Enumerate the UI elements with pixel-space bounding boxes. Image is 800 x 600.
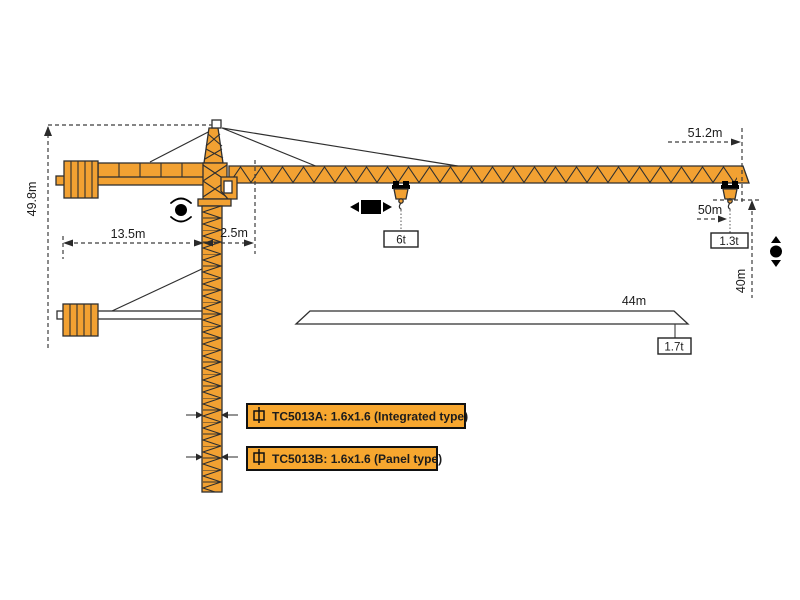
svg-text:6t: 6t — [396, 235, 406, 247]
variant-b-label: TC5013B: 1.6x1.6 (Panel type) — [272, 452, 442, 466]
counter-jib-platform — [98, 163, 204, 177]
radius-dimension-label: 51.2m — [688, 126, 723, 140]
hook-radius-label: 50m — [698, 203, 722, 217]
counter-jib-dimension: 13.5m — [63, 227, 204, 259]
diagram-canvas: 44m 1.7t — [0, 0, 800, 600]
variant-a-label: TC5013A: 1.6x1.6 (Integrated type) — [272, 410, 468, 424]
load-label-jib-tip: 1.3t — [711, 233, 748, 248]
height-dimension-label: 49.8m — [25, 182, 39, 217]
tower-crane-dimension-diagram: 44m 1.7t — [0, 0, 800, 600]
slewing-icon — [171, 199, 191, 222]
short-jib-length-label: 44m — [622, 294, 646, 308]
counterweight — [64, 161, 98, 198]
offset-dimension-label: 2.5m — [220, 226, 248, 240]
svg-text:1.7t: 1.7t — [664, 342, 684, 354]
hook-height-label: 40m — [734, 269, 748, 293]
load-label-short-jib-tip: 1.7t — [658, 338, 691, 354]
jib-lattice — [230, 167, 737, 183]
hook-radius-dimension: 50m — [697, 203, 727, 223]
cab-window — [224, 181, 232, 193]
main-jib — [229, 166, 749, 183]
counter-jib — [56, 128, 216, 198]
tower-apex — [204, 120, 223, 163]
trolley-mid-span — [392, 181, 410, 210]
apex-cap — [212, 120, 221, 128]
jib-tie-rods — [222, 128, 470, 169]
mast-lattice — [202, 206, 222, 492]
variant-box-b: TC5013B: 1.6x1.6 (Panel type) — [247, 447, 442, 470]
hook-icon — [399, 199, 403, 203]
counter-jib-dimension-label: 13.5m — [111, 227, 146, 241]
variant-box-a: TC5013A: 1.6x1.6 (Integrated type) — [247, 404, 468, 428]
short-jib-outline — [296, 311, 688, 324]
hoist-up-down-icon — [770, 236, 782, 267]
slewing-platform — [198, 199, 231, 206]
trolley-travel-icon — [350, 200, 392, 214]
short-jib-configuration: 44m 1.7t — [57, 268, 691, 354]
trolley-jib-tip — [721, 181, 739, 210]
short-config-tie-rod — [112, 268, 204, 311]
load-label-mid-span: 6t — [384, 231, 418, 247]
short-config-counterweight — [63, 304, 98, 336]
tower-mast — [202, 206, 222, 492]
svg-text:1.3t: 1.3t — [719, 236, 739, 248]
